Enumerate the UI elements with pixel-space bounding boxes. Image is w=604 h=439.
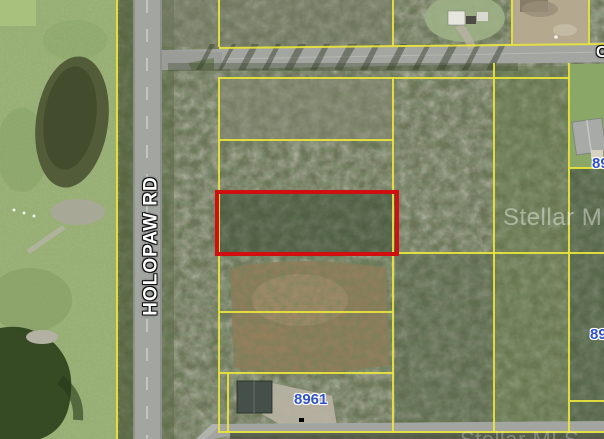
road-label-partial-c: C <box>596 45 604 61</box>
address-label-partial-lower: 89 <box>590 327 604 342</box>
highlighted-parcel-outline <box>215 190 399 256</box>
parcel-boundary-line <box>569 400 604 402</box>
road-label-holopaw-rd: HOLOPAW RD <box>142 176 161 315</box>
address-label-partial-upper: 89 <box>592 156 604 171</box>
parcel-boundary-line <box>219 77 570 79</box>
parcel-boundary-line <box>219 139 394 141</box>
parcel-boundary-line <box>392 0 394 47</box>
parcel-boundary-line <box>588 0 590 45</box>
parcel-boundary-line <box>218 0 220 47</box>
parcel-boundary-line <box>227 373 229 432</box>
address-label-8961: 8961 <box>294 392 327 407</box>
parcel-boundary-line <box>568 63 570 433</box>
stellar-mls-watermark: Stellar MLS <box>503 204 604 232</box>
parcel-boundary-line <box>493 63 495 433</box>
parcel-boundary-line <box>219 372 394 374</box>
parcel-boundary-line <box>219 311 394 313</box>
stellar-mls-watermark-bottom: Stellar MLS <box>460 427 579 439</box>
parcel-boundary-line <box>116 0 118 439</box>
parcel-boundary-line <box>511 0 513 45</box>
aerial-parcel-map: HOLOPAW RD C 8961 89 89 Stellar MLS Stel… <box>0 0 604 439</box>
